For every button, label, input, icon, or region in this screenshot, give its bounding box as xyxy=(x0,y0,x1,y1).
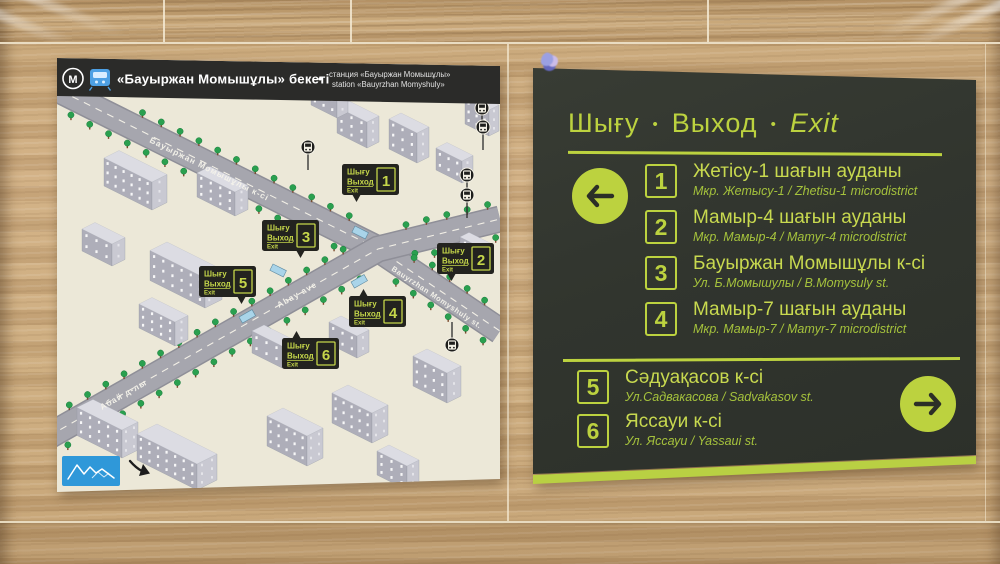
exit-row-6: 6 Яссауи к-сі Ул. Яссауи / Yassaui st. xyxy=(577,414,814,449)
tile-seam xyxy=(163,0,165,42)
exit-number-badge: 2 xyxy=(645,210,677,244)
svg-text:Exit: Exit xyxy=(442,268,453,274)
svg-text:5: 5 xyxy=(239,275,247,292)
tile-seam xyxy=(985,44,986,521)
mountains-logo xyxy=(62,456,120,486)
title-en: Exit xyxy=(790,108,839,138)
tile-seam xyxy=(507,44,509,521)
exit-row-1: 1 Жетісу-1 шағын ауданы Мкр. Жетысу-1 / … xyxy=(645,164,925,199)
title-ru: Выход xyxy=(672,108,758,138)
exit-title: Мамыр-7 шағын ауданы xyxy=(693,300,906,321)
svg-text:Выход: Выход xyxy=(347,178,374,187)
exit-row-2: 2 Мамыр-4 шағын ауданы Мкр. Мамыр-4 / Ma… xyxy=(645,210,925,245)
exit-title: Яссауи к-сі xyxy=(625,412,758,433)
svg-text:3: 3 xyxy=(302,229,310,246)
svg-text:Шығу: Шығу xyxy=(267,224,290,233)
tile-seam xyxy=(707,0,709,42)
svg-text:Выход: Выход xyxy=(442,257,469,266)
station-map-sign: Бауыржан Момышұлы к-сі Bauyrzhan Momyshu… xyxy=(57,58,500,492)
exit-row-3: 3 Бауыржан Момышұлы к-сі Ул. Б.Момышулы … xyxy=(645,256,925,291)
exit-list-bottom: 5 Сәдуақасов к-сі Ул.Садвакасова / Sadva… xyxy=(577,370,814,449)
exit-number-badge: 3 xyxy=(645,256,677,290)
exit-subtitle: Ул.Садвакасова / Sadvakasov st. xyxy=(625,390,814,404)
exit-title: Сәдуақасов к-сі xyxy=(625,368,814,389)
exit-list-top: 1 Жетісу-1 шағын ауданы Мкр. Жетысу-1 / … xyxy=(645,164,925,337)
map-subtitle-en: station «Bauyrzhan Momyshuly» xyxy=(332,80,445,89)
direction-left-arrow xyxy=(572,168,628,224)
svg-text:Выход: Выход xyxy=(287,352,314,361)
svg-text:M: M xyxy=(68,74,77,86)
exit-subtitle: Мкр. Мамыр-4 / Mamyr-4 microdistrict xyxy=(693,230,906,244)
direction-right-arrow xyxy=(900,376,956,432)
svg-text:Шығу: Шығу xyxy=(442,247,465,256)
exit-subtitle: Ул. Яссауи / Yassaui st. xyxy=(625,434,758,448)
wall-bottom-band xyxy=(0,523,1000,564)
svg-text:Шығу: Шығу xyxy=(287,342,310,351)
exit-row-4: 4 Мамыр-7 шағын ауданы Мкр. Мамыр-7 / Ma… xyxy=(645,302,925,337)
exit-title: Бауыржан Момышұлы к-сі xyxy=(693,254,925,275)
wall-background: Бауыржан Момышұлы к-сі Bauyrzhan Momyshu… xyxy=(0,0,1000,564)
svg-text:Шығу: Шығу xyxy=(204,270,227,279)
title-dot: • xyxy=(771,116,777,133)
svg-text:Выход: Выход xyxy=(204,280,231,289)
map-title: «Бауыржан Момышұлы» бекеті xyxy=(117,72,330,87)
left-arrow-icon xyxy=(580,176,620,216)
svg-text:6: 6 xyxy=(322,347,330,364)
exit-subtitle: Мкр. Мамыр-7 / Mamyr-7 microdistrict xyxy=(693,322,906,336)
svg-text:Exit: Exit xyxy=(267,245,278,251)
map-subtitle-ru: станция «Бауыржан Момышұлы» xyxy=(329,70,451,79)
exit-sign-title: Шығу•Выход•Exit xyxy=(568,108,839,139)
tile-seam xyxy=(350,0,352,42)
exit-number-badge: 5 xyxy=(577,370,609,404)
group-divider xyxy=(563,357,960,362)
svg-text:Exit: Exit xyxy=(354,321,365,327)
exit-subtitle: Ул. Б.Момышулы / B.Momysuly st. xyxy=(693,276,925,290)
svg-text:Шығу: Шығу xyxy=(347,168,370,177)
svg-text:Выход: Выход xyxy=(354,310,381,319)
svg-text:Шығу: Шығу xyxy=(354,300,377,309)
exit-number-badge: 6 xyxy=(577,414,609,448)
svg-text:Exit: Exit xyxy=(347,189,358,195)
svg-text:1: 1 xyxy=(382,173,390,190)
svg-text:Exit: Exit xyxy=(204,291,215,297)
svg-text:4: 4 xyxy=(389,305,398,322)
title-dot: • xyxy=(653,116,659,133)
svg-text:2: 2 xyxy=(477,252,485,269)
exit-directory-sign: Шығу•Выход•Exit 1 Жетісу-1 шағын ауданы … xyxy=(533,64,976,484)
right-arrow-icon xyxy=(908,384,948,424)
header-underline xyxy=(568,151,942,156)
exit-subtitle: Мкр. Жетысу-1 / Zhetisu-1 microdistrict xyxy=(693,184,917,198)
exit-number-badge: 1 xyxy=(645,164,677,198)
exit-number-badge: 4 xyxy=(645,302,677,336)
wall-top-band xyxy=(0,0,1000,44)
title-kk: Шығу xyxy=(568,108,640,138)
exit-title: Мамыр-4 шағын ауданы xyxy=(693,208,906,229)
svg-text:Exit: Exit xyxy=(287,363,298,369)
title-separator-dot: • xyxy=(318,72,322,86)
exit-row-5: 5 Сәдуақасов к-сі Ул.Садвакасова / Sadva… xyxy=(577,370,814,405)
exit-title: Жетісу-1 шағын ауданы xyxy=(693,162,917,183)
svg-text:Выход: Выход xyxy=(267,234,294,243)
